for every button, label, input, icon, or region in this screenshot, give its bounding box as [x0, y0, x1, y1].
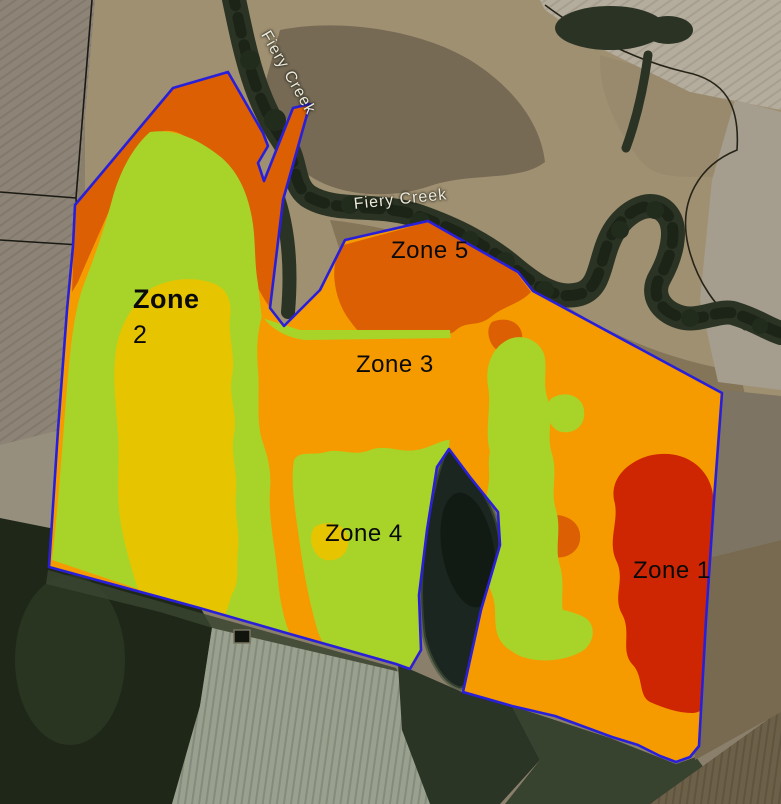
tree	[752, 318, 768, 334]
dark-paddock-tone	[15, 575, 125, 745]
tree	[646, 201, 664, 219]
zone-2-label-number: 2	[133, 322, 200, 348]
tree	[264, 109, 286, 131]
tree	[681, 309, 699, 327]
zone-2-label: Zone 2	[133, 285, 200, 349]
tree	[611, 221, 629, 239]
zone-5-label: Zone 5	[391, 238, 469, 263]
farm-dam	[234, 630, 250, 643]
zone-4-label: Zone 4	[325, 521, 403, 546]
tree-clump-2	[643, 16, 693, 44]
green-patch-southeast	[502, 607, 593, 660]
zone-map: Fiery Creek Fiery Creek Zone 5 Zone 3 Zo…	[0, 0, 781, 804]
map-canvas	[0, 0, 781, 804]
tree	[240, 50, 260, 70]
zone-2-label-word: Zone	[133, 285, 200, 313]
zone-1-label: Zone 1	[633, 558, 711, 583]
zone-3-label: Zone 3	[356, 352, 434, 377]
